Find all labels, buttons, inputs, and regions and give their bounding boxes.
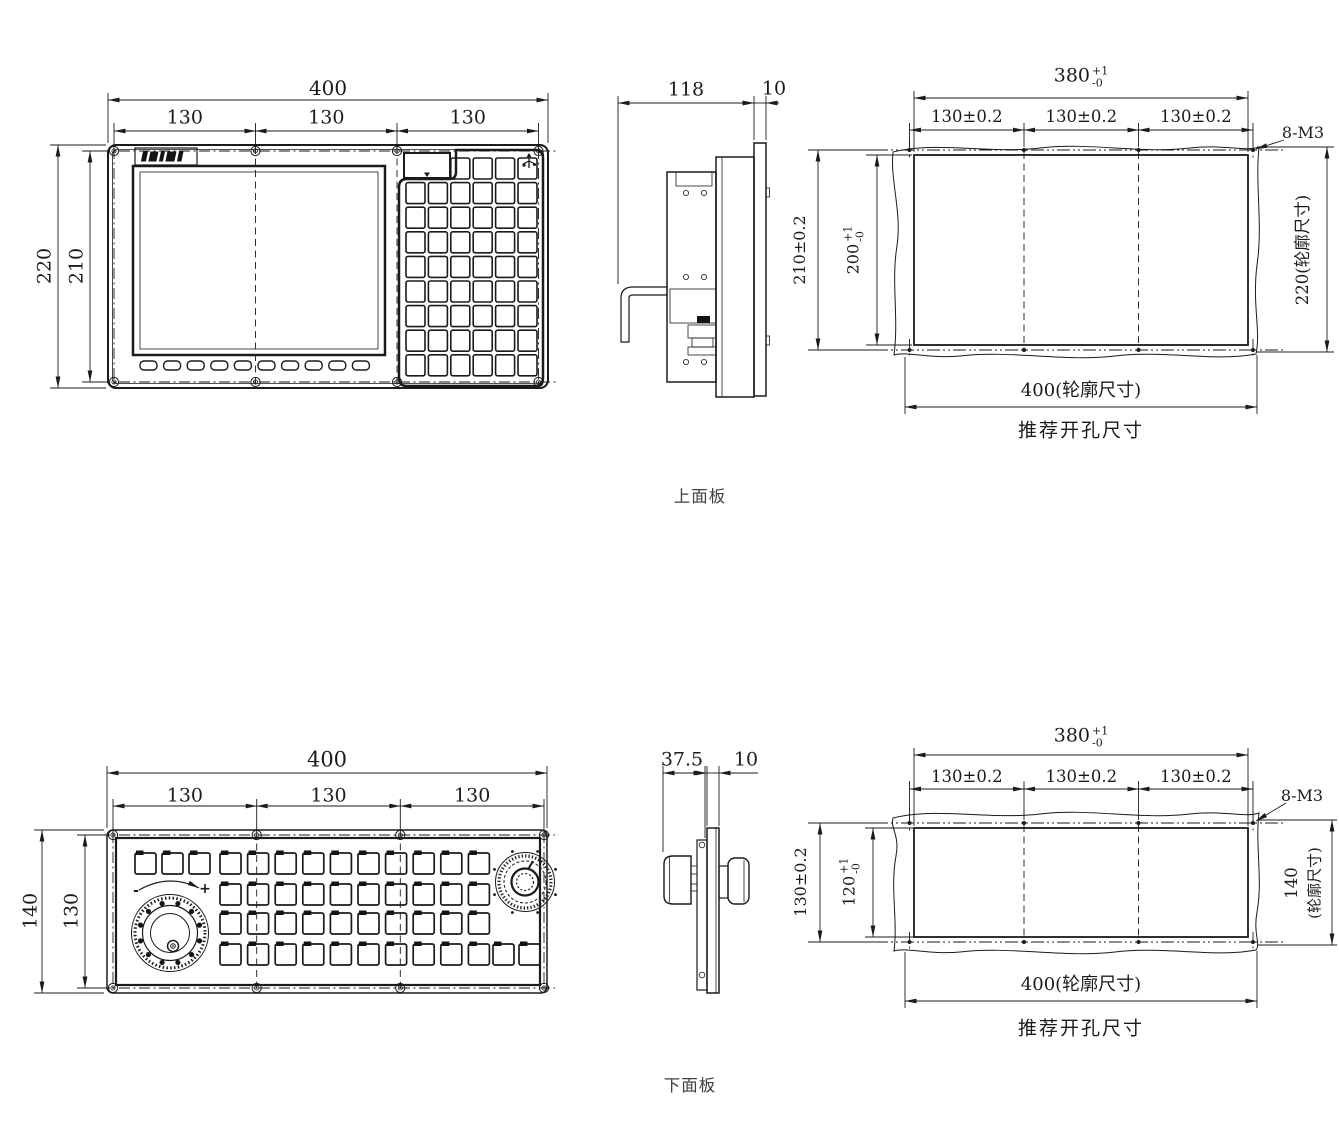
dim-lower-pitch-3: 130±0.2: [1160, 769, 1232, 786]
panel-sheet-outline: [892, 812, 1259, 953]
key: [473, 330, 492, 351]
dim-lower-pitch-vertical: 130±0.2: [793, 847, 809, 916]
dim-lower-total-width: 400: [307, 750, 347, 771]
key: [220, 853, 241, 874]
dim-upper-cutout-width: 380 +1-0: [1054, 64, 1108, 87]
dim-upper-pitch-3: 130±0.2: [1160, 109, 1232, 126]
key: [303, 853, 324, 874]
thread-spec-upper: 8-M3: [1282, 125, 1324, 141]
key: [220, 884, 241, 905]
key: [428, 355, 447, 376]
dimension-lines: [618, 96, 779, 284]
handwheel-plus-label: +: [199, 882, 211, 896]
lower-cutout-view: [808, 748, 1337, 1008]
switch-knob-side: [728, 858, 749, 904]
key: [413, 944, 434, 965]
hole-mark: [1022, 940, 1026, 944]
dim-upper-total-width: 400: [309, 78, 347, 98]
key: [406, 232, 425, 253]
lower-mounting-plate: [707, 828, 719, 993]
softkey: [305, 361, 322, 370]
key: [518, 306, 537, 327]
hole-mark: [908, 148, 912, 152]
dim-lower-outline-height-value: 140: [1284, 867, 1301, 899]
hole-mark: [1251, 940, 1255, 944]
key: [428, 330, 447, 351]
usb-icon: [523, 153, 537, 168]
softkey: [211, 361, 228, 370]
hole-mark: [1022, 348, 1026, 352]
key: [441, 884, 462, 905]
dim-upper-outer-height: 220: [36, 248, 55, 284]
key: [358, 944, 379, 965]
key: [386, 853, 407, 874]
key: [496, 232, 515, 253]
softkey: [329, 361, 346, 370]
key: [406, 330, 425, 351]
key: [248, 913, 269, 934]
dim-upper-depth: 118: [668, 81, 704, 100]
key: [468, 944, 489, 965]
key: [413, 884, 434, 905]
thread-hole-marks: [908, 148, 1256, 352]
dim-lower-seg-2: 130: [310, 787, 346, 806]
softkey: [140, 361, 157, 370]
dim-lower-pitch-1: 130±0.2: [931, 769, 1003, 786]
softkey: [234, 361, 251, 370]
cutout-caption-lower: 推荐开孔尺寸: [1018, 1020, 1144, 1039]
upper-panel-side-view: [618, 96, 779, 397]
key: [451, 306, 470, 327]
handwheel-minus-label: -: [133, 884, 139, 898]
key: [330, 853, 351, 874]
key: [406, 281, 425, 302]
dim-lower-cutout-height: 120 +1-0: [837, 858, 860, 907]
hole-mark: [1251, 148, 1255, 152]
key: [358, 884, 379, 905]
dim-lower-seg-3: 130: [454, 787, 490, 806]
thread-spec-lower: 8-M3: [1281, 788, 1323, 804]
upper-panel-front-view: [50, 93, 557, 388]
hole-mark: [1251, 821, 1255, 825]
dim-lower-outline-width: 400(轮廓尺寸): [1021, 976, 1141, 994]
key: [386, 913, 407, 934]
cutout-opening: [914, 828, 1248, 937]
view-caption-upper: 上面板: [674, 489, 727, 506]
lower-panel-side-view: [663, 766, 758, 993]
key: [451, 232, 470, 253]
softkey-row: [140, 361, 369, 370]
softkey: [282, 361, 299, 370]
cutout-opening: [914, 155, 1248, 345]
dim-lower-pitch-2: 130±0.2: [1046, 769, 1118, 786]
dim-upper-cutout-height: 200 +1-0: [841, 226, 864, 275]
key: [451, 183, 470, 204]
hole-mark: [1137, 148, 1141, 152]
dim-upper-thickness: 10: [762, 80, 786, 99]
upper-cutout-view: [808, 91, 1334, 414]
hole-mark: [1022, 821, 1026, 825]
key: [518, 207, 537, 228]
key: [275, 853, 296, 874]
key: [330, 944, 351, 965]
key: [496, 281, 515, 302]
hole-mark: [908, 348, 912, 352]
dim-lower-seg-1: 130: [167, 787, 203, 806]
dim-upper-outline-width: 400(轮廓尺寸): [1021, 382, 1141, 400]
key: [413, 913, 434, 934]
key: [518, 256, 537, 277]
key: [248, 853, 269, 874]
key: [386, 944, 407, 965]
key: [473, 306, 492, 327]
key: [406, 256, 425, 277]
key: [220, 944, 241, 965]
key: [428, 232, 447, 253]
hole-mark: [1022, 148, 1026, 152]
drawing-linework: [0, 0, 1339, 1127]
dimension-lines: [663, 766, 758, 852]
hole-mark: [1137, 348, 1141, 352]
hole-centerlines: [875, 141, 1283, 359]
panel-sheet-outline: [893, 146, 1260, 357]
key: [330, 884, 351, 905]
key: [473, 232, 492, 253]
key: [451, 355, 470, 376]
lower-panel-outline: [107, 830, 547, 993]
dim-upper-pitch-vertical: 210±0.2: [792, 215, 808, 284]
keypad-grid: [406, 158, 537, 376]
key: [451, 256, 470, 277]
key: [451, 207, 470, 228]
key: [275, 884, 296, 905]
handwheel: [132, 881, 209, 972]
hook-bracket: [621, 287, 667, 342]
dimension-lines: [808, 748, 1337, 1008]
dim-lower-inner-height: 130: [63, 893, 82, 929]
key: [406, 183, 425, 204]
key: [473, 183, 492, 204]
view-caption-lower: 下面板: [664, 1078, 717, 1095]
key: [473, 281, 492, 302]
key: [496, 207, 515, 228]
key: [189, 853, 210, 874]
key: [330, 913, 351, 934]
key: [518, 183, 537, 204]
cutout-caption-upper: 推荐开孔尺寸: [1018, 422, 1144, 441]
key: [428, 281, 447, 302]
dim-lower-thickness: 10: [734, 751, 758, 770]
key: [473, 207, 492, 228]
key: [473, 355, 492, 376]
key: [496, 183, 515, 204]
key: [451, 281, 470, 302]
key: [518, 281, 537, 302]
key: [303, 944, 324, 965]
usb-cover-marker: [424, 173, 430, 178]
key: [275, 944, 296, 965]
key: [493, 944, 514, 965]
softkey: [352, 361, 369, 370]
key: [518, 232, 537, 253]
key: [518, 158, 537, 179]
hole-mark: [908, 821, 912, 825]
key: [441, 853, 462, 874]
key: [518, 330, 537, 351]
key: [135, 853, 156, 874]
hole-mark: [1251, 348, 1255, 352]
key: [220, 913, 241, 934]
key: [451, 158, 470, 179]
dim-lower-outer-height: 140: [22, 893, 41, 929]
key: [496, 256, 515, 277]
key: [428, 207, 447, 228]
dim-upper-seg-3: 130: [450, 109, 486, 128]
key: [303, 913, 324, 934]
softkey: [164, 361, 181, 370]
key: [162, 853, 183, 874]
key: [473, 256, 492, 277]
dim-lower-cutout-width: 380 +1-0: [1054, 724, 1108, 747]
dim-upper-outline-height: 220(轮廓尺寸): [1295, 195, 1312, 305]
key: [518, 355, 537, 376]
mounting-plate: [754, 143, 766, 396]
softkey: [258, 361, 275, 370]
hole-centerlines: [875, 814, 1283, 951]
key: [468, 884, 489, 905]
key: [441, 913, 462, 934]
key: [358, 913, 379, 934]
key: [468, 913, 489, 934]
key: [275, 913, 296, 934]
hole-mark: [1137, 821, 1141, 825]
thread-hole-marks: [908, 821, 1256, 944]
key: [496, 330, 515, 351]
display-screen: [133, 166, 385, 355]
engineering-drawing: 400 130 130 130 220 210 118 10 380 +1-0 …: [0, 0, 1339, 1127]
dim-lower-depth: 37.5: [661, 751, 703, 770]
key: [428, 256, 447, 277]
key: [358, 853, 379, 874]
key: [473, 158, 492, 179]
key: [468, 853, 489, 874]
chassis-box: [667, 172, 716, 382]
key: [406, 207, 425, 228]
key: [428, 306, 447, 327]
dim-upper-seg-1: 130: [167, 109, 203, 128]
hole-mark: [908, 940, 912, 944]
key: [303, 884, 324, 905]
key: [406, 306, 425, 327]
key: [406, 355, 425, 376]
key: [386, 884, 407, 905]
key: [496, 306, 515, 327]
key: [413, 853, 434, 874]
softkey: [187, 361, 204, 370]
handwheel-side: [664, 856, 691, 904]
dim-upper-pitch-1: 130±0.2: [931, 109, 1003, 126]
button-grid: [135, 851, 540, 966]
key: [441, 944, 462, 965]
key: [451, 330, 470, 351]
hole-mark: [1137, 940, 1141, 944]
dim-upper-pitch-2: 130±0.2: [1046, 109, 1118, 126]
key: [248, 884, 269, 905]
dim-upper-seg-2: 130: [308, 109, 344, 128]
dim-upper-inner-height: 210: [68, 248, 87, 284]
key: [248, 944, 269, 965]
dim-lower-outline-height-suffix: (轮廓尺寸): [1308, 847, 1323, 919]
key: [496, 158, 515, 179]
dimension-lines: [808, 91, 1334, 414]
key: [428, 183, 447, 204]
key: [519, 944, 540, 965]
key: [496, 355, 515, 376]
